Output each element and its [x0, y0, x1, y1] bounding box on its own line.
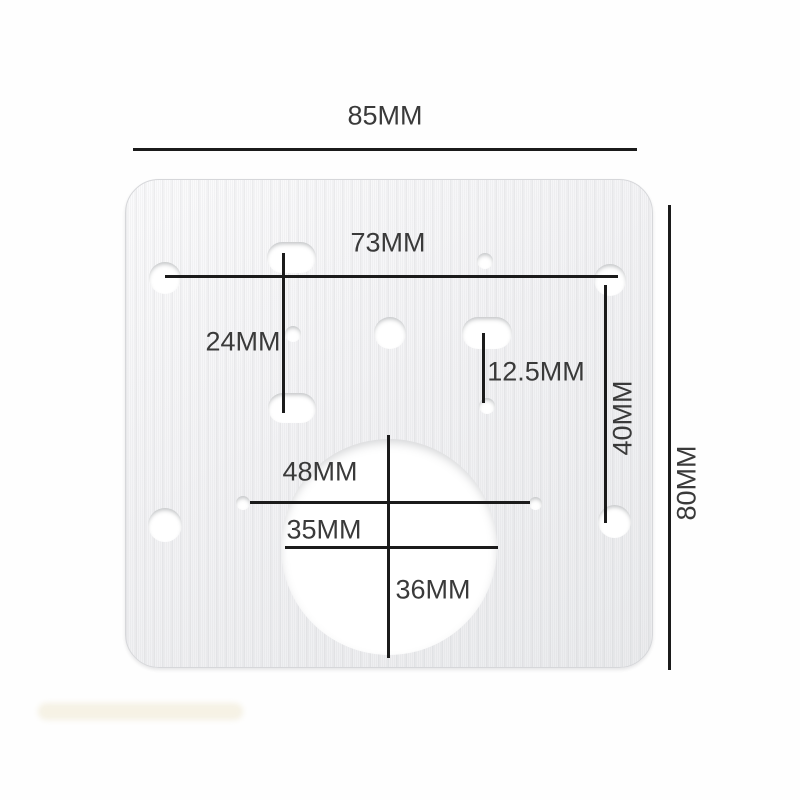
pilot-hole-top — [477, 253, 493, 269]
dim-line-24mm — [282, 253, 285, 413]
product-dimension-image: 85MM 80MM 73MM 24MM 12.5MM 40MM 48MM 35M… — [0, 0, 800, 800]
pilot-hole-left — [285, 326, 301, 342]
hole-mid-center — [374, 317, 406, 349]
dim-line-48mm — [250, 501, 530, 504]
slot-top-left — [267, 242, 316, 273]
dim-line-85mm — [133, 148, 637, 151]
dim-line-12-5mm — [482, 333, 485, 403]
dim-label-35mm: 35MM — [286, 515, 361, 546]
dim-line-80mm — [668, 205, 671, 670]
dim-label-36mm: 36MM — [395, 575, 470, 606]
dim-label-48mm: 48MM — [282, 457, 357, 488]
pilot-hole-span-right — [529, 497, 542, 510]
slot-lower-left — [268, 393, 316, 423]
dim-line-73mm — [165, 275, 618, 278]
dim-label-12-5mm: 12.5MM — [487, 357, 585, 388]
dim-label-24mm: 24MM — [205, 327, 280, 358]
pilot-hole-span-left — [236, 496, 250, 510]
dim-label-80mm: 80MM — [672, 445, 703, 520]
hole-top-right — [594, 264, 626, 296]
dim-label-40mm: 40MM — [608, 380, 639, 455]
hole-bottom-right — [598, 505, 631, 538]
hole-top-left — [149, 262, 181, 294]
dim-line-36mm — [387, 435, 390, 658]
watermark-smudge — [38, 703, 243, 720]
slot-mid-right — [462, 317, 512, 349]
hole-bottom-left — [148, 508, 182, 542]
dim-line-35mm — [285, 546, 498, 549]
dim-label-73mm: 73MM — [350, 228, 425, 259]
dim-label-85mm: 85MM — [347, 101, 422, 132]
